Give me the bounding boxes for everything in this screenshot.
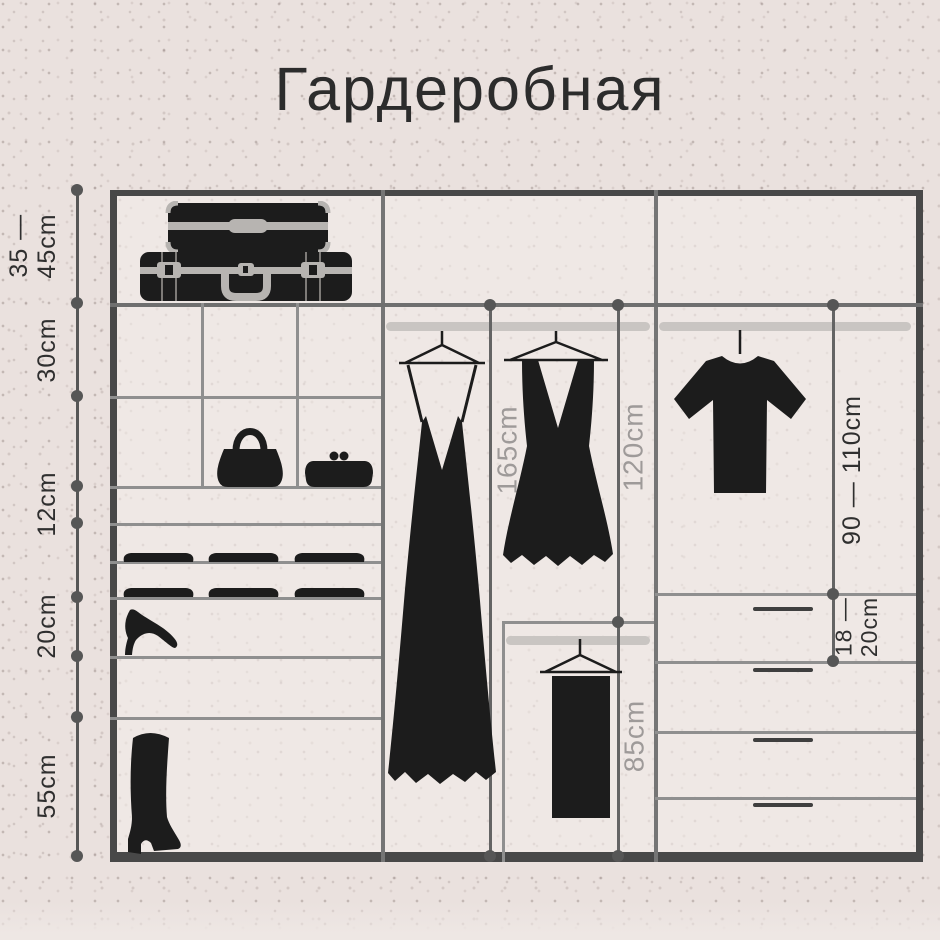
rail-dot (71, 184, 83, 196)
folded-clothes-icon (206, 585, 281, 597)
hanger-icon (540, 639, 622, 672)
rail-dot (71, 711, 83, 723)
drawer-line (655, 661, 916, 664)
measure-label-mid-hang: 120cm (617, 402, 648, 491)
measure-dot (484, 299, 496, 311)
boot-icon (124, 731, 187, 859)
trousers-icon (538, 637, 624, 821)
measure-label-long-hang: 165cm (491, 405, 522, 494)
shelf-line (110, 717, 381, 720)
shelf-line (110, 303, 923, 307)
rail-dot (71, 850, 83, 862)
folded-clothes-icon (121, 550, 196, 562)
folded-clothes-icon (121, 585, 196, 597)
divider-line (654, 190, 658, 862)
measure-label-right-hang: 90 — 110cm (838, 395, 866, 545)
page-title: Гардеробная (0, 54, 940, 124)
shelf-line (110, 597, 381, 600)
shelf-line (110, 396, 381, 399)
tshirt-icon (669, 330, 811, 500)
shelf-divider-line (296, 303, 299, 486)
drawer-handle (753, 738, 813, 742)
measure-label-drawer: 18 —20cm (780, 597, 935, 657)
clutch-icon (303, 448, 375, 488)
handbag-icon (209, 419, 291, 489)
measure-dot (612, 299, 624, 311)
folded-clothes-icon (206, 550, 281, 562)
drawer-handle (753, 803, 813, 807)
measure-dot (484, 850, 496, 862)
shelf-line (110, 523, 381, 526)
shelf-divider-line (201, 303, 204, 486)
rail-label: 12cm (0, 471, 117, 536)
high-heel-icon (120, 608, 178, 658)
partition-line (502, 621, 654, 624)
drawer-line (655, 593, 916, 596)
measure-dot (612, 850, 624, 862)
rail-label: 20cm (0, 593, 117, 658)
measure-dot (612, 616, 624, 628)
rail-label: 35 —45cm (0, 213, 117, 278)
wardrobe-infographic: Гардеробная (0, 0, 940, 940)
hanger-icon (504, 331, 608, 360)
rail-dot (71, 297, 83, 309)
suitcases-icon (138, 201, 354, 303)
drawer-line (655, 797, 916, 800)
long-dress-icon (378, 329, 512, 793)
rail-label: 30cm (0, 317, 117, 382)
rail-dot (71, 390, 83, 402)
folded-clothes-icon (292, 585, 367, 597)
hanger-icon (399, 331, 485, 363)
measure-label-short-hang: 85cm (618, 700, 649, 772)
drawer-handle (753, 668, 813, 672)
drawer-line (655, 731, 916, 734)
folded-clothes-icon (292, 550, 367, 562)
rail-label: 55cm (0, 753, 117, 818)
measure-dot (827, 299, 839, 311)
